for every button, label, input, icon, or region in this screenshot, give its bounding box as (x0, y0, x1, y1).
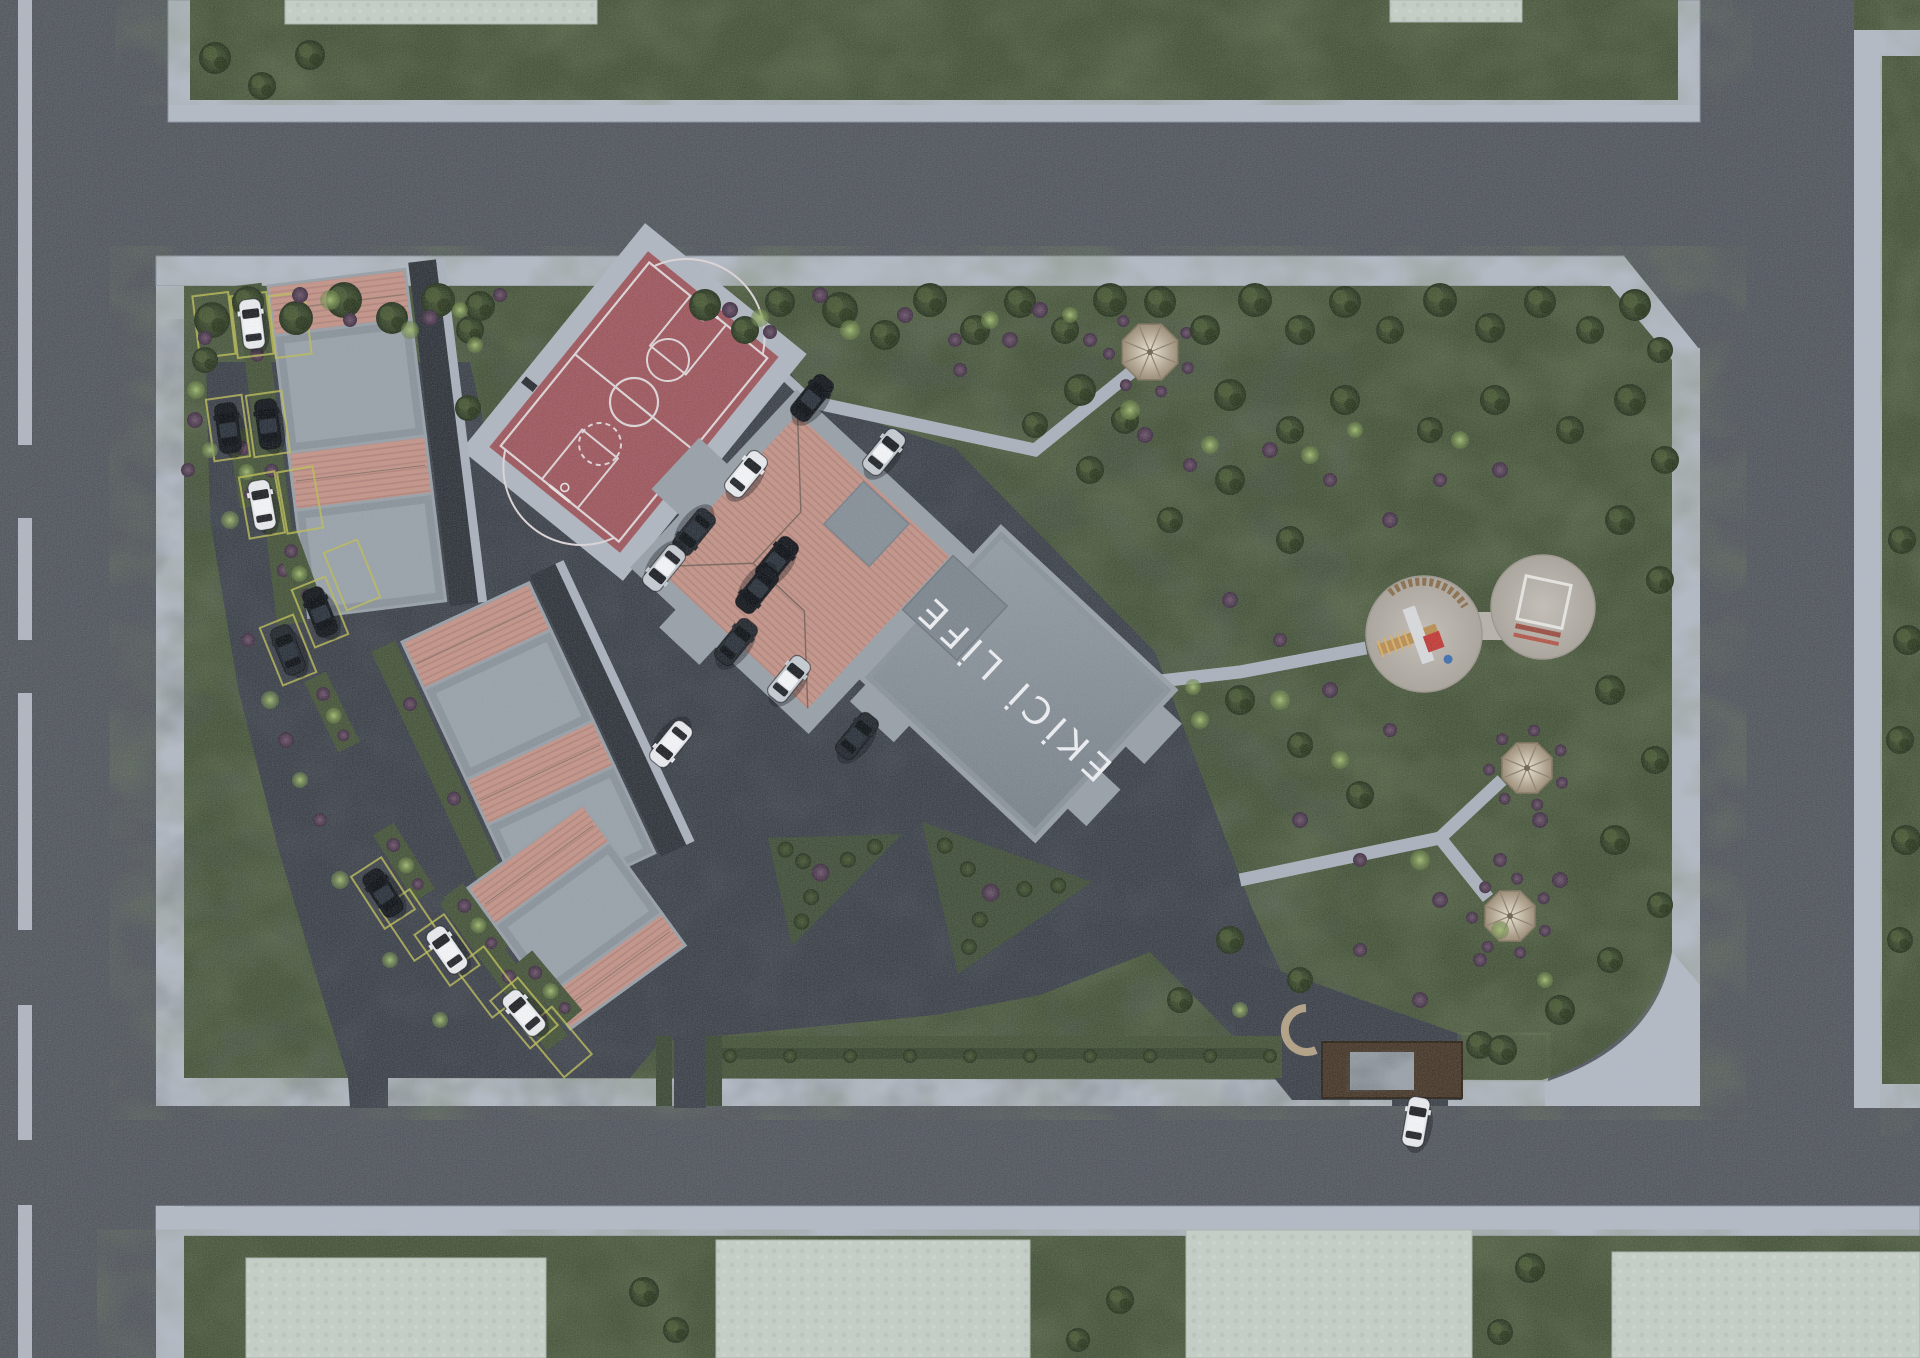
render-grain (0, 0, 1920, 1358)
grain-overlay (0, 0, 1920, 1358)
site-plan-render: EKİCİ LİFE (0, 0, 1920, 1358)
site-plan-svg: EKİCİ LİFE (0, 0, 1920, 1358)
